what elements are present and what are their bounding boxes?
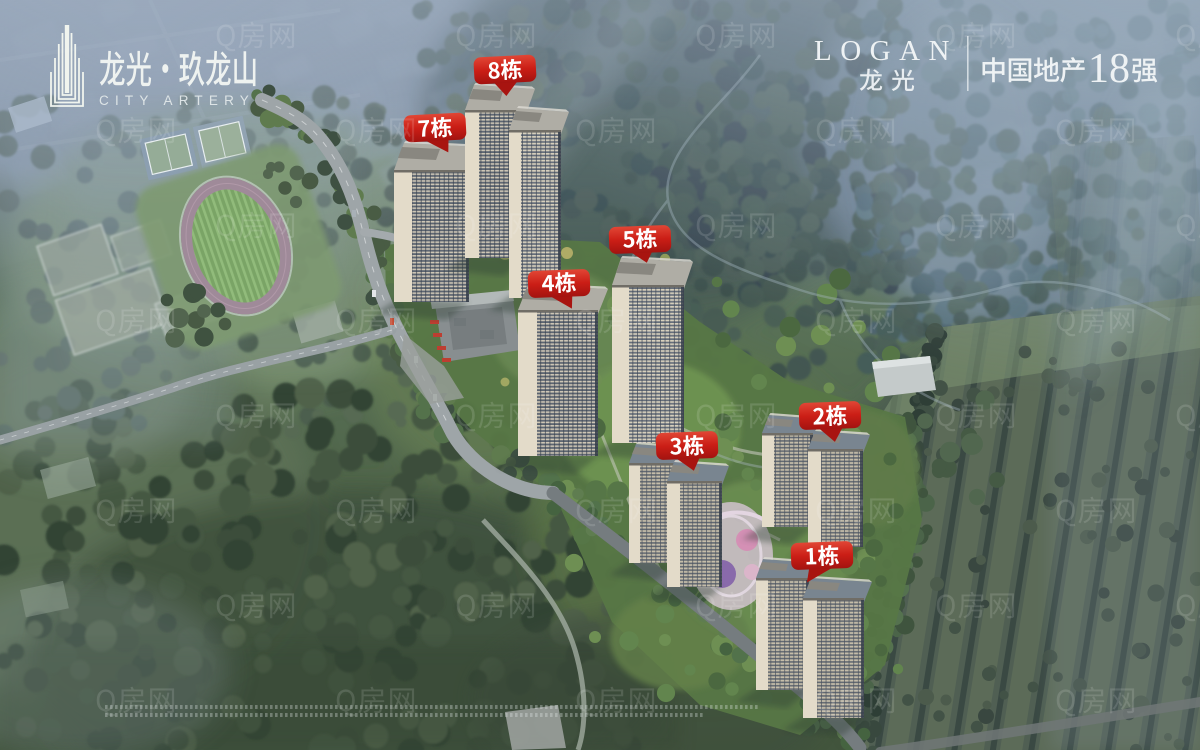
svg-text:18: 18 bbox=[1088, 46, 1130, 92]
svg-text:LOGAN: LOGAN bbox=[814, 35, 958, 67]
svg-text:CITY ARTERY: CITY ARTERY bbox=[99, 93, 255, 108]
